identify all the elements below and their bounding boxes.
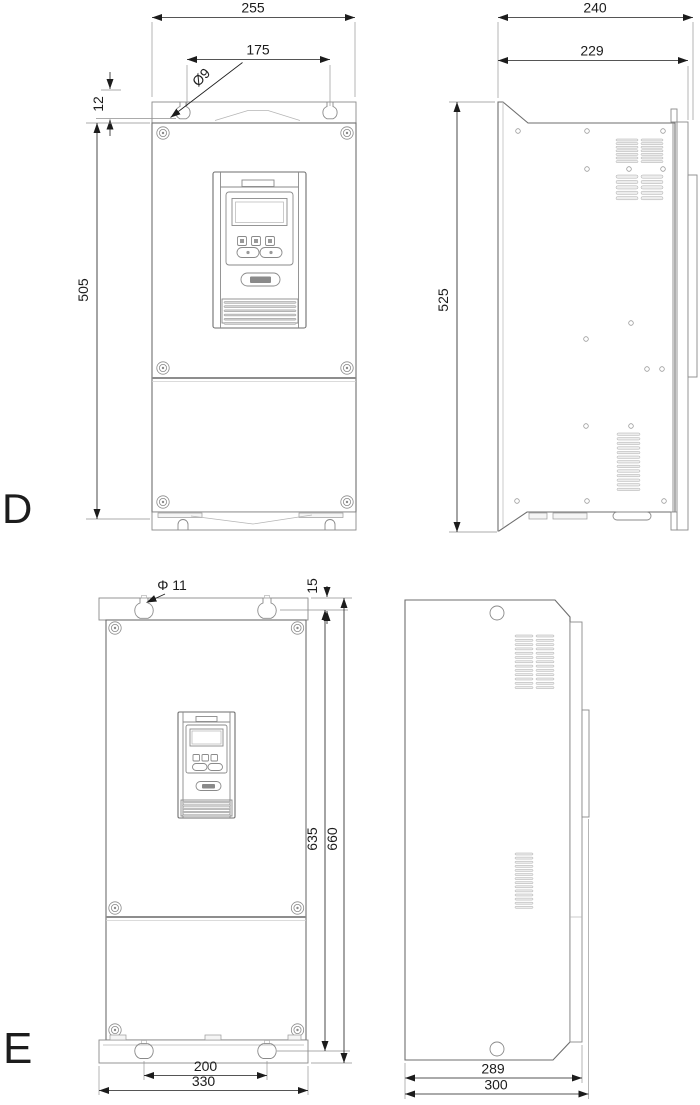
keypad-unit — [178, 712, 235, 818]
dim-label: 525 — [435, 288, 451, 312]
dim-label: 229 — [580, 43, 604, 59]
top-mounting-bracket — [152, 102, 356, 123]
dim-label: 660 — [324, 827, 340, 851]
section-letter-d: D — [2, 485, 32, 532]
enclosure-body — [106, 620, 306, 1040]
keypad-face — [226, 192, 293, 265]
dim-label: 289 — [481, 1061, 505, 1077]
back-mounting-plate — [677, 122, 688, 530]
back-plate-tab — [688, 175, 697, 377]
bottom-mounting-bracket — [152, 512, 356, 530]
dim-overall-depth: 240 — [498, 0, 693, 120]
dim-overall-height: 505 — [75, 123, 150, 519]
dim-side-height: 525 — [435, 102, 497, 532]
dim-label: 15 — [304, 578, 320, 594]
dim-label: Φ 11 — [157, 577, 187, 593]
bottom-feet — [529, 512, 651, 520]
dim-label: 330 — [192, 1073, 216, 1089]
back-plate-tab — [582, 710, 589, 817]
view-d-side — [498, 102, 697, 531]
dim-label: 300 — [484, 1077, 508, 1093]
dim-label: 255 — [241, 0, 265, 16]
section-letter-e: E — [3, 1024, 32, 1073]
keypad-unit — [213, 172, 306, 328]
dim-label: 505 — [75, 278, 91, 302]
dim-body-depth: 229 — [498, 43, 688, 121]
dim-label: 175 — [246, 42, 270, 58]
view-d-front — [152, 102, 356, 530]
side-outline — [405, 600, 570, 1060]
drawing-canvas: 255 175 Ø9 12 505 — [0, 0, 700, 1105]
view-e-front — [99, 596, 308, 1064]
dim-label: 200 — [194, 1058, 218, 1074]
view-e-side — [405, 600, 589, 1060]
dim-label: 635 — [304, 827, 320, 851]
dim-label: Ø9 — [189, 65, 214, 90]
dim-label: 12 — [90, 96, 106, 112]
dim-label: 240 — [583, 0, 607, 16]
back-mounting-plate — [570, 622, 582, 1042]
top-mounting-bracket — [99, 596, 308, 621]
